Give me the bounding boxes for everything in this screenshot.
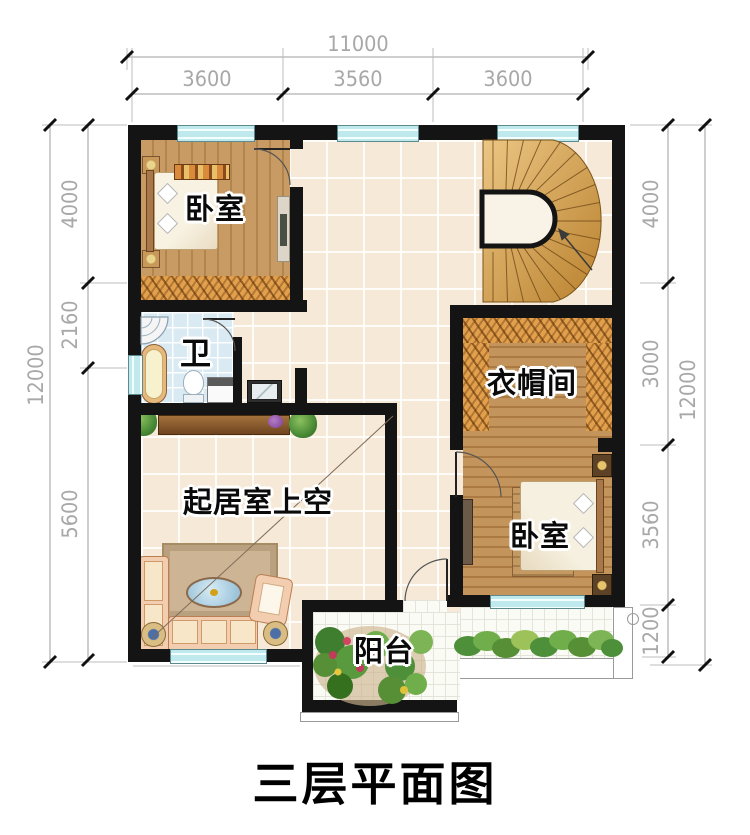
tv-screen — [280, 214, 287, 246]
label-living-void: 起居室上空 — [183, 479, 333, 521]
wall-tv-stub — [295, 368, 307, 405]
bedroom1-rug — [141, 276, 290, 302]
sofa-cushion — [201, 620, 227, 644]
window — [497, 125, 579, 142]
sofa-cushion — [144, 561, 163, 601]
toilet — [183, 370, 204, 395]
window-bedroom2 — [490, 595, 585, 609]
dim-right-seg-2: 3000 — [639, 339, 663, 388]
wall-bedroom1-right-a — [290, 140, 303, 149]
bed-bench — [174, 164, 230, 180]
dim-top-seg-2: 3560 — [333, 67, 382, 91]
washing-machine — [207, 377, 235, 403]
dim-top-seg-1: 3600 — [182, 67, 231, 91]
nightstand — [592, 574, 612, 597]
balcony-railing-under-left — [300, 712, 459, 722]
window — [177, 125, 255, 142]
dim-right-total: 12000 — [676, 359, 700, 420]
label-bathroom: 卫 — [180, 329, 212, 374]
wall-balcony-bottom — [302, 700, 457, 712]
dim-left-seg-2: 2160 — [58, 300, 82, 349]
dim-left-seg-1: 4000 — [58, 179, 82, 228]
wall-cloakroom-left — [450, 305, 463, 450]
bathtub-basin — [145, 349, 163, 399]
tv-wall-screen — [251, 383, 278, 400]
wall-bathroom-right — [233, 337, 242, 405]
dim-right-seg-1: 4000 — [639, 179, 663, 228]
bed-headboard — [146, 170, 154, 252]
wall-hall-balcony — [302, 600, 403, 612]
toilet-tank — [183, 394, 204, 403]
side-table — [141, 622, 166, 647]
balcony-floor-right — [460, 607, 612, 658]
dim-top-seg-3: 3600 — [483, 67, 532, 91]
wall-living-top — [128, 403, 397, 415]
label-bedroom1: 卧室 — [185, 186, 245, 228]
side-table — [263, 621, 288, 646]
wall-bedroom1-right-b — [290, 187, 303, 312]
wardrobe-right — [586, 343, 612, 431]
flower-vase — [268, 415, 283, 428]
floor-plan: 卧室 卫 衣帽间 起居室上空 卧室 阳台 11000 3600 3560 360… — [0, 0, 750, 835]
dim-right-seg-4: 1200 — [639, 606, 663, 655]
wardrobe-top — [463, 318, 612, 343]
bed-headboard — [596, 479, 604, 573]
coffee-table-decor — [210, 589, 218, 596]
wardrobe-left — [463, 343, 489, 431]
nightstand — [142, 250, 160, 268]
wall-living-right — [385, 403, 397, 612]
dim-left-total: 12000 — [24, 344, 48, 405]
plan-title: 三层平面图 — [0, 748, 750, 814]
dim-left-seg-3: 5600 — [58, 489, 82, 538]
window — [337, 125, 419, 142]
dim-right-seg-3: 3560 — [639, 500, 663, 549]
nightstand — [592, 454, 612, 477]
wall-cloakroom-top — [450, 305, 625, 318]
wall-bedroom2-left — [450, 495, 463, 607]
label-balcony: 阳台 — [354, 628, 414, 670]
wall-bedroom1-bottom — [128, 300, 307, 312]
balcony-door-threshold — [403, 600, 447, 612]
balcony-railing-right — [613, 607, 633, 679]
label-cloakroom: 衣帽间 — [487, 360, 577, 402]
balcony-railing-bottom — [455, 658, 632, 679]
sofa-cushion — [230, 620, 256, 644]
dim-top-total: 11000 — [327, 32, 388, 56]
window-bathroom — [128, 355, 143, 395]
wall-right — [612, 125, 625, 607]
label-bedroom2: 卧室 — [510, 513, 570, 555]
window-living — [170, 649, 267, 664]
wall-cloakroom-right-stub — [598, 438, 612, 452]
sofa-cushion — [172, 620, 198, 644]
